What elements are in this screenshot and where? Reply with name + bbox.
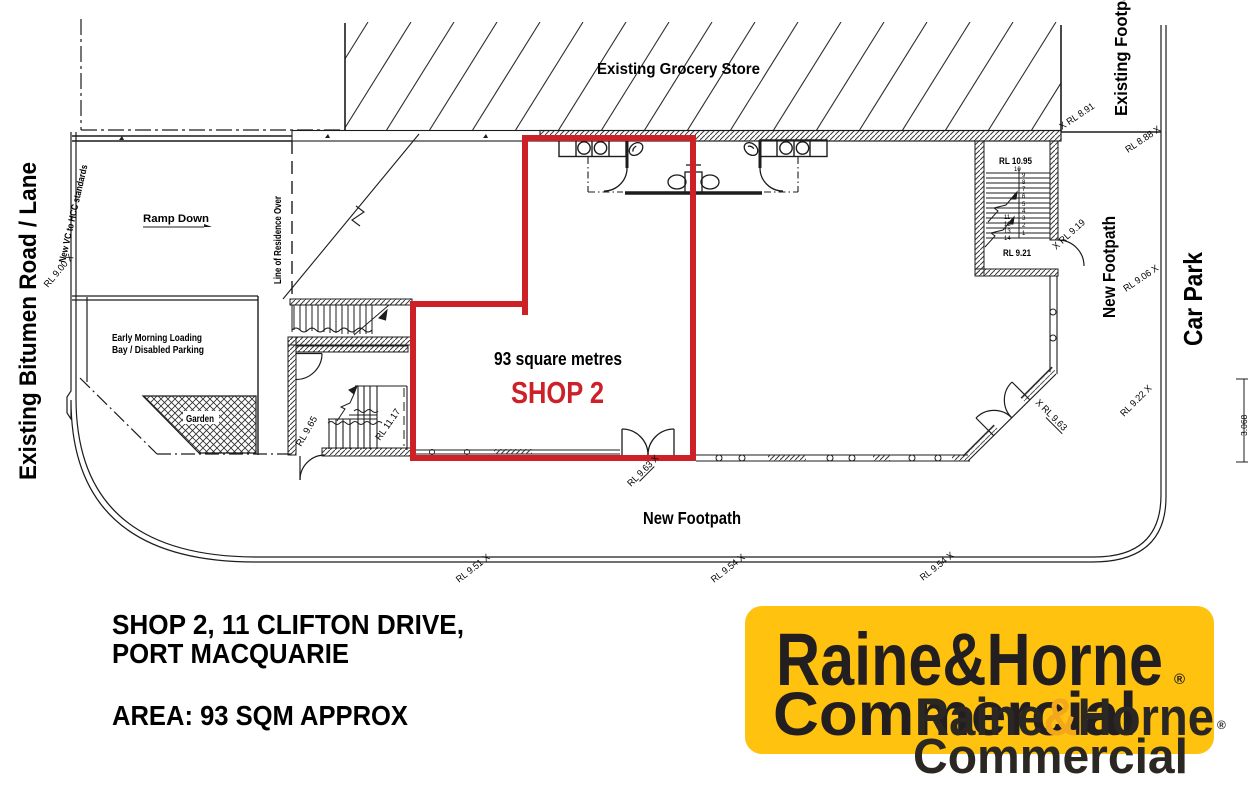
svg-text:3.068: 3.068: [1239, 414, 1248, 436]
svg-text:RL 9.54 X: RL 9.54 X: [918, 550, 957, 584]
svg-text:Existing Bitumen Road / Lane: Existing Bitumen Road / Lane: [15, 162, 42, 480]
svg-text:New Footpath: New Footpath: [1099, 216, 1119, 318]
svg-text:RL 9.22 X: RL 9.22 X: [1118, 383, 1155, 420]
svg-text:Garden: Garden: [186, 414, 214, 425]
svg-text:®: ®: [1174, 671, 1185, 688]
svg-text:Car Park: Car Park: [1178, 252, 1208, 346]
svg-text:PORT MACQUARIE: PORT MACQUARIE: [112, 638, 349, 669]
svg-text:®: ®: [1217, 718, 1226, 732]
svg-text:RL 9.21: RL 9.21: [1003, 248, 1032, 259]
svg-text:Existing Footpath: Existing Footpath: [1111, 0, 1131, 116]
svg-text:14: 14: [1004, 236, 1011, 242]
svg-text:13: 13: [1004, 229, 1011, 235]
svg-text:AREA: 93 SQM APPROX: AREA: 93 SQM APPROX: [112, 700, 409, 731]
svg-text:Ramp Down: Ramp Down: [143, 213, 209, 225]
svg-text:RL 9.65: RL 9.65: [294, 414, 320, 448]
svg-text:Bay / Disabled Parking: Bay / Disabled Parking: [112, 345, 204, 356]
svg-text:Commercial: Commercial: [913, 730, 1188, 784]
svg-text:4: 4: [1022, 209, 1026, 215]
svg-text:X RL 8.91: X RL 8.91: [1058, 101, 1097, 132]
svg-text:SHOP 2: SHOP 2: [511, 375, 604, 410]
svg-text:SHOP 2, 11 CLIFTON DRIVE,: SHOP 2, 11 CLIFTON DRIVE,: [112, 609, 464, 640]
svg-text:6: 6: [1022, 194, 1026, 200]
svg-text:RL 8.88 X: RL 8.88 X: [1124, 124, 1164, 156]
svg-text:11: 11: [1004, 215, 1011, 221]
svg-text:RL 11.17: RL 11.17: [373, 407, 403, 443]
svg-text:Line of Residence Over: Line of Residence Over: [273, 196, 284, 284]
svg-text:Existing Grocery Store: Existing Grocery Store: [597, 61, 760, 78]
svg-text:RL 9.06 X: RL 9.06 X: [1122, 263, 1162, 295]
svg-text:X RL 9.63: X RL 9.63: [1033, 397, 1069, 433]
svg-text:1: 1: [1022, 231, 1026, 237]
svg-text:New Footpath: New Footpath: [643, 508, 741, 528]
svg-text:3: 3: [1022, 216, 1026, 222]
svg-text:New VC to HCC standards: New VC to HCC standards: [57, 164, 90, 264]
svg-text:93 square metres: 93 square metres: [494, 349, 622, 369]
svg-text:RL 10.95: RL 10.95: [999, 156, 1033, 167]
svg-text:Early Morning Loading: Early Morning Loading: [112, 333, 202, 344]
svg-text:10: 10: [1014, 167, 1021, 173]
